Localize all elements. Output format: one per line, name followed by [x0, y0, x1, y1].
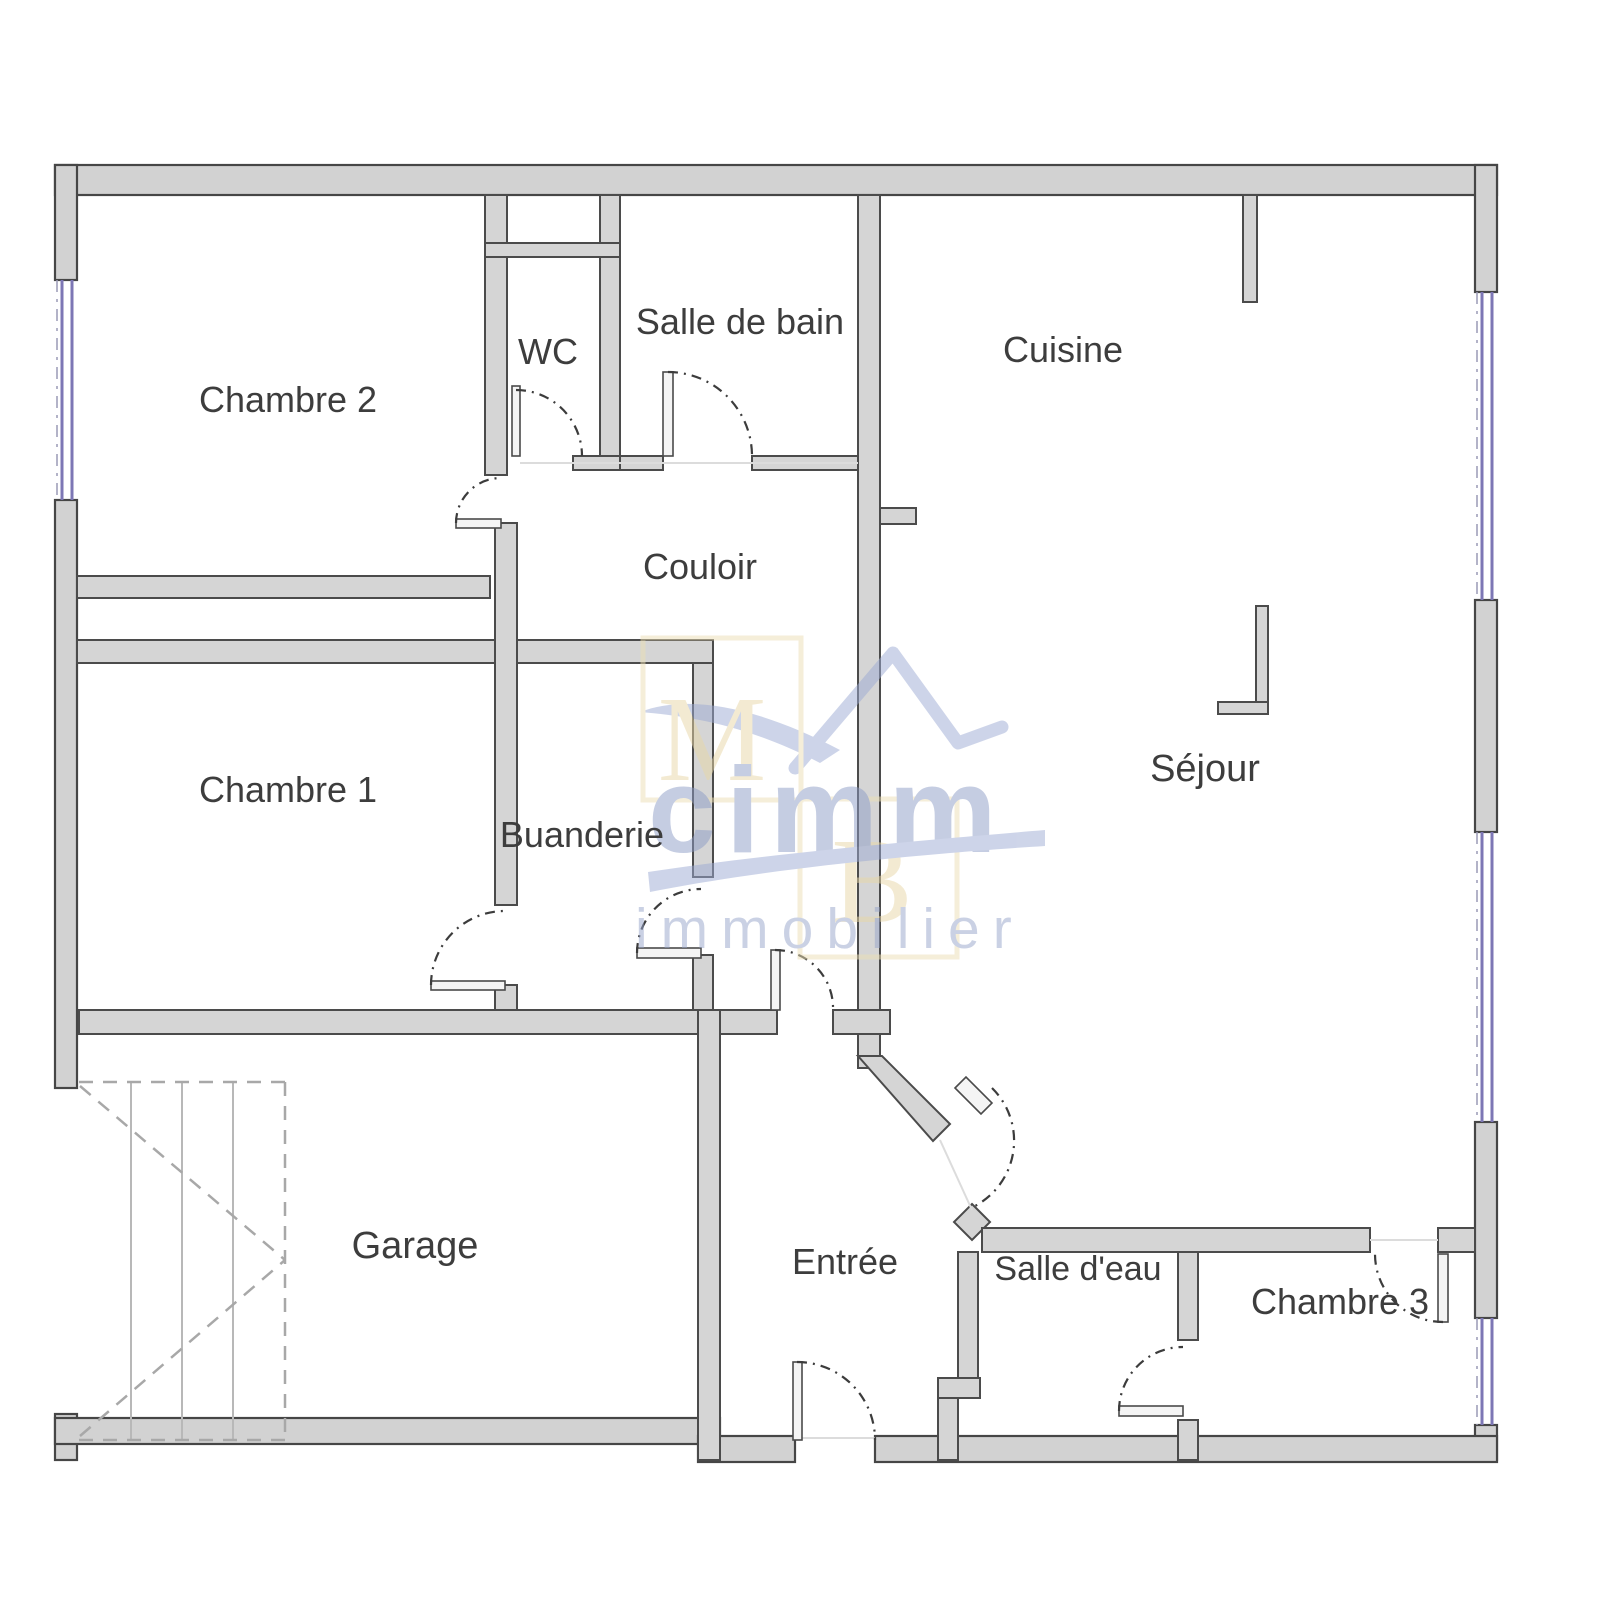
window-icon — [1477, 292, 1492, 600]
wall-chambre2-bottom — [77, 576, 490, 598]
wall-kitchen-l-horizontal — [1218, 702, 1268, 714]
room-label-couloir: Couloir — [643, 546, 757, 587]
wall-garage-entree — [698, 1010, 720, 1460]
watermark-brand-sub: immobilier — [635, 897, 1025, 961]
wall-chambre1-top — [77, 640, 713, 663]
wall-left-main — [55, 500, 77, 1088]
floor-plan-drawing: M B cimm immobilier Chambre 2 WC Salle d… — [0, 0, 1600, 1600]
room-label-buanderie: Buanderie — [500, 814, 664, 855]
wall-right-3 — [1475, 1122, 1497, 1318]
door-icon-chambre-1 — [431, 911, 505, 990]
wall-kitchen-l-vertical — [1256, 606, 1268, 714]
wall-cuisine-top-stub — [1243, 195, 1257, 302]
door-icon-wc — [512, 386, 582, 456]
door-icon-salle-deau — [1119, 1347, 1183, 1416]
room-label-garage: Garage — [352, 1225, 479, 1267]
wall-cuisine-stub — [880, 508, 916, 524]
wall-right-1 — [1475, 165, 1497, 292]
window-icon — [57, 280, 72, 500]
room-label-sejour: Séjour — [1150, 748, 1260, 790]
wall-sde-chambre3-stub — [1178, 1420, 1198, 1460]
wall-chambre2-wc — [485, 195, 507, 475]
room-label-entree: Entrée — [792, 1241, 898, 1282]
wall-wc-niche — [485, 243, 620, 257]
door-icon-salle-de-bain — [663, 372, 752, 456]
wall-couloir-bottom-right — [833, 1010, 890, 1034]
wall-wc-sdb — [600, 195, 620, 460]
door-icon-chambre-2 — [456, 478, 501, 528]
wall-top — [55, 165, 1497, 195]
watermark-logo: M B cimm immobilier — [635, 638, 1045, 961]
room-label-chambre-3: Chambre 3 — [1251, 1281, 1429, 1322]
floor-plan: M B cimm immobilier Chambre 2 WC Salle d… — [0, 0, 1600, 1600]
wall-left-upper — [55, 165, 77, 280]
window-icon — [1477, 832, 1492, 1122]
room-label-chambre-2: Chambre 2 — [199, 379, 377, 420]
room-label-salle-de-bain: Salle de bain — [636, 301, 844, 342]
wall-sde-left — [958, 1252, 978, 1392]
wall-garage-top — [79, 1010, 777, 1034]
window-icon — [1477, 1318, 1492, 1425]
wall-sejour-bottom-right — [1438, 1228, 1475, 1252]
room-label-cuisine: Cuisine — [1003, 329, 1123, 370]
wall-right-2 — [1475, 600, 1497, 832]
room-label-wc: WC — [518, 331, 578, 372]
wall-sde-notch — [938, 1378, 980, 1398]
wall-buanderie-right-lower — [693, 955, 713, 1015]
wall-sde-left-lower — [938, 1398, 958, 1460]
door-icon-entree-south — [793, 1362, 875, 1440]
room-label-salle-deau: Salle d'eau — [994, 1250, 1161, 1288]
stairs-icon — [79, 1082, 285, 1440]
door-icon-front-entrance — [955, 1077, 1014, 1206]
wall-sejour-bottom — [982, 1228, 1370, 1252]
wall-sde-chambre3 — [1178, 1252, 1198, 1340]
room-label-chambre-1: Chambre 1 — [199, 769, 377, 810]
wall-diagonal-entree — [858, 1056, 950, 1141]
